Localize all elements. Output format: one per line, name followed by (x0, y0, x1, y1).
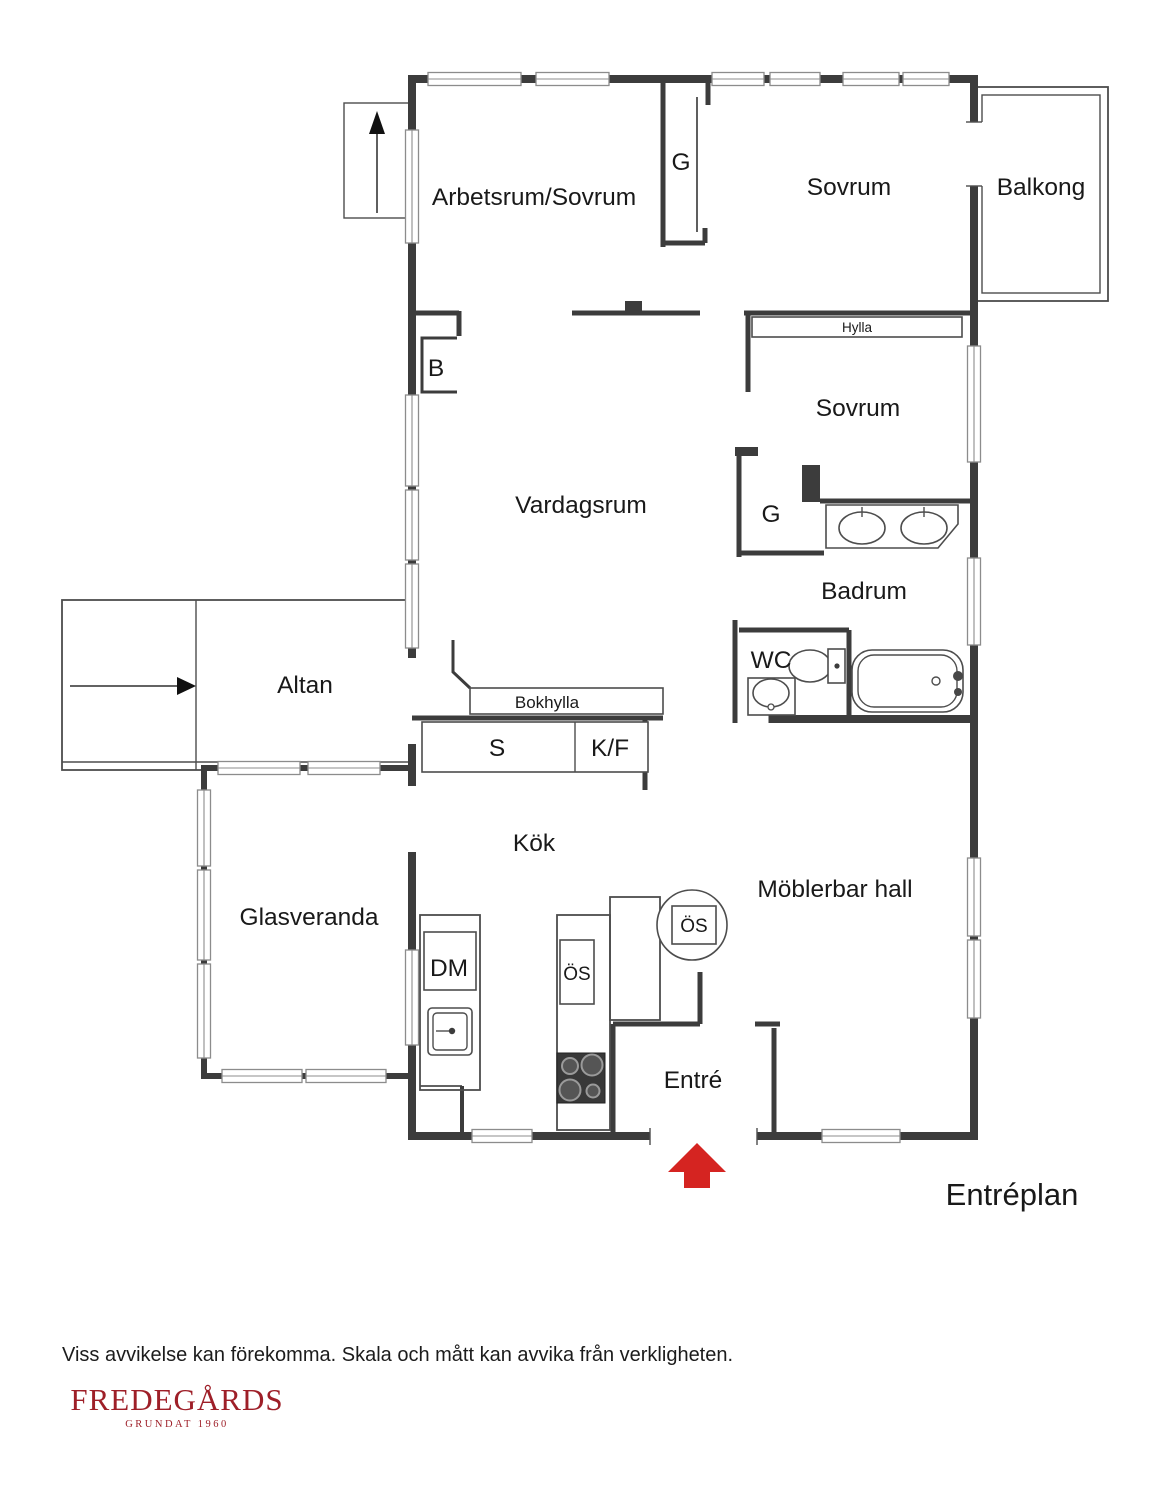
double-sink-vanity (826, 505, 958, 548)
bathtub (852, 650, 963, 712)
room-label-badrum: Badrum (821, 578, 907, 605)
label-bokhylla: Bokhylla (515, 693, 580, 712)
label-b-closet: B (428, 355, 444, 382)
toilet (789, 649, 845, 683)
room-label-sovrum-2: Sovrum (816, 395, 900, 422)
room-label-moblerbar-hall: Möblerbar hall (757, 876, 912, 903)
room-label-sovrum-1: Sovrum (807, 174, 891, 201)
altan-arrow-icon (177, 677, 196, 695)
outdoor-stairs (344, 103, 410, 218)
agency-logo-name: FREDEGÅRDS (62, 1382, 292, 1418)
room-label-kok: Kök (513, 830, 556, 857)
interior-walls (412, 83, 974, 1136)
label-skafferi: S (489, 735, 505, 762)
kitchen-peninsula (557, 897, 660, 1130)
label-garderob-2: G (761, 501, 780, 528)
room-label-arbetsrum-sovrum: Arbetsrum/Sovrum (432, 184, 636, 211)
room-label-altan: Altan (277, 672, 333, 699)
floor-title: Entréplan (946, 1177, 1079, 1212)
room-label-glasveranda: Glasveranda (240, 904, 379, 931)
altan-deck (62, 600, 412, 770)
stairs-up-arrow-icon (369, 111, 385, 134)
floor-plan-page: Arbetsrum/Sovrum Sovrum Balkong G B Hyll… (0, 0, 1171, 1500)
room-label-vardagsrum: Vardagsrum (515, 492, 647, 519)
entrance-arrow-icon (668, 1143, 726, 1188)
room-label-balkong: Balkong (997, 174, 1086, 201)
room-label-wc: WC (751, 647, 792, 674)
wc-sink (748, 678, 795, 715)
label-diskmaskin: DM (430, 955, 468, 982)
label-garderob-1: G (671, 149, 690, 176)
label-ugn: ÖS (563, 964, 590, 985)
dm-counter (420, 915, 480, 1090)
disclaimer-text: Viss avvikelse kan förekomma. Skala och … (62, 1344, 733, 1367)
floor-plan-canvas: Arbetsrum/Sovrum Sovrum Balkong G B Hyll… (0, 0, 1171, 1500)
stove (557, 1053, 605, 1103)
room-label-entre: Entré (664, 1067, 723, 1094)
label-hylla: Hylla (842, 320, 872, 335)
agency-logo: FREDEGÅRDS GRUNDAT 1960 (62, 1382, 292, 1430)
label-oppen-spis: ÖS (680, 916, 707, 937)
exterior-wall-main (412, 79, 974, 1136)
agency-logo-tagline: GRUNDAT 1960 (62, 1419, 292, 1430)
label-kyl-frys: K/F (591, 735, 629, 762)
